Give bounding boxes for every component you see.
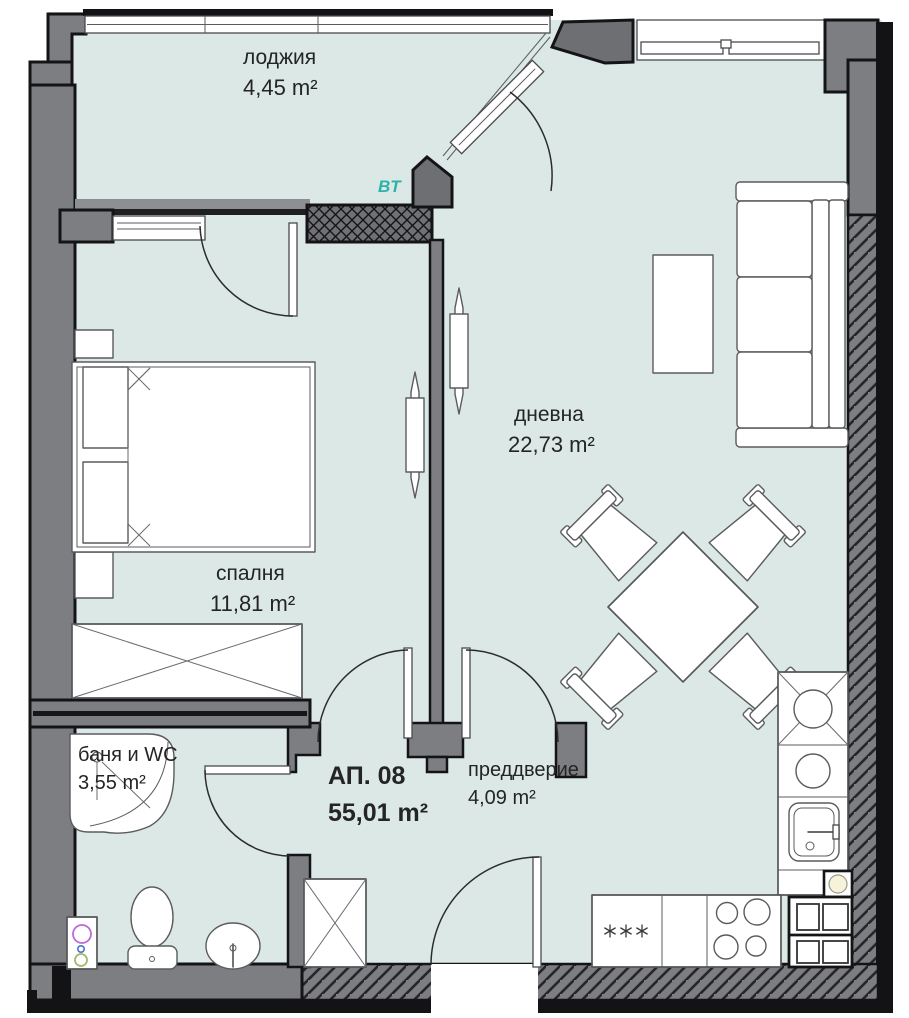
entrance-door-leaf — [533, 857, 541, 967]
room-area: 22,73 m² — [508, 434, 595, 456]
sofa-armrest — [736, 428, 848, 447]
entrance-threshold — [431, 964, 538, 1014]
coffee-table — [653, 255, 713, 373]
apartment-area: 55,01 m² — [328, 801, 428, 826]
bathroom-door-leaf — [205, 766, 290, 774]
room-name: дневна — [514, 404, 595, 425]
washing-machine — [67, 917, 97, 969]
bedroom-window — [113, 216, 205, 240]
balcony-door-leaf — [289, 223, 297, 316]
room-area: 3,55 m² — [78, 773, 178, 793]
loggia-sill — [75, 199, 310, 210]
apartment-label: АП. 08 55,01 m² — [328, 764, 428, 826]
kitchen-fixture-circle — [796, 754, 830, 788]
sofa-seat — [737, 277, 812, 352]
room-area: 11,81 m² — [210, 593, 295, 615]
bed — [72, 362, 315, 552]
floor-plan — [0, 0, 909, 1018]
wall-central-base — [408, 723, 463, 757]
room-label-loggia: лоджия 4,45 m² — [243, 47, 318, 99]
wardrobe — [72, 624, 302, 698]
wall-bottom-hatched — [300, 964, 878, 1000]
room-label-living: дневна 22,73 m² — [514, 404, 595, 456]
wall-crosshatch-block — [307, 205, 432, 242]
living-window-left — [641, 42, 723, 54]
bedroom-door-leaf — [404, 648, 412, 738]
sofa-armrest — [736, 182, 848, 201]
room-area: 4,45 m² — [243, 77, 318, 99]
shaft — [824, 871, 852, 897]
floor-plan-page: лоджия 4,45 m² дневна 22,73 m² спалня 11… — [0, 0, 909, 1018]
sofa — [736, 182, 848, 447]
nightstand-top — [75, 330, 113, 358]
room-label-bedroom: спалня 11,81 m² — [216, 563, 295, 615]
nightstand-bottom — [75, 552, 113, 598]
pillow — [83, 367, 128, 448]
wall-left-step — [30, 62, 72, 85]
pillow — [83, 462, 128, 543]
sofa-seat — [737, 352, 812, 428]
wall-bedroom-tl — [60, 210, 113, 242]
sofa-back — [812, 200, 829, 428]
fridge — [789, 897, 852, 967]
wall-right-solid — [848, 60, 878, 215]
living-window-right — [729, 42, 819, 54]
living-door-leaf — [462, 648, 470, 738]
room-area: 4,09 m² — [468, 788, 579, 808]
kitchen-sink — [789, 803, 839, 861]
room-label-hall: преддверие 4,09 m² — [468, 760, 579, 808]
kitchen-fixture-circle — [794, 690, 832, 728]
wall-central — [430, 240, 443, 725]
bt-annotation: BT — [378, 178, 401, 195]
room-name: баня и WC — [78, 745, 178, 765]
room-name: преддверие — [468, 760, 579, 780]
room-label-bath: баня и WC 3,55 m² — [78, 745, 178, 793]
toilet — [128, 887, 177, 969]
room-name: спалня — [216, 563, 295, 584]
wall-right-hatched — [848, 215, 878, 967]
sofa-back — [829, 200, 845, 428]
room-name: лоджия — [243, 47, 318, 68]
apartment-number: АП. 08 — [328, 764, 428, 789]
sofa-seat — [737, 201, 812, 277]
entrance-cabinet — [304, 879, 366, 967]
bathroom-sink — [206, 923, 260, 969]
